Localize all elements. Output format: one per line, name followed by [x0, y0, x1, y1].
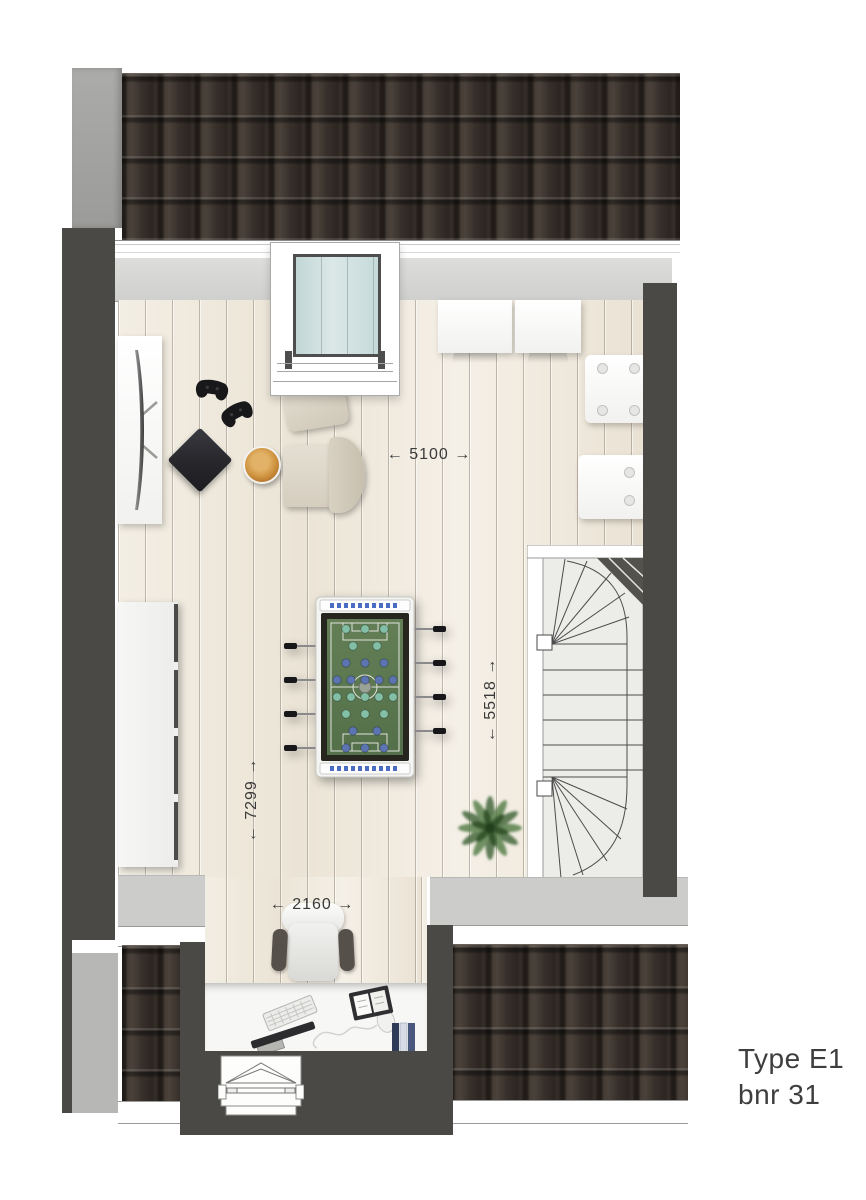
dimension-stair-zone-depth: ← 5518 → — [482, 645, 500, 755]
chair-armrest — [338, 929, 355, 972]
plant-icon — [450, 788, 530, 868]
office-chair-icon — [272, 903, 354, 985]
garden-wall-block — [72, 953, 118, 1113]
armchair — [283, 437, 369, 513]
tv-cabinet — [118, 336, 162, 524]
fascia-bottom-left — [118, 1101, 185, 1124]
dimension-desk-nook-width: ← 2160 → — [257, 896, 367, 914]
roof-tiles-bottom-right — [450, 944, 688, 1102]
plan-type-label: Type E1 bnr 31 — [738, 1041, 844, 1113]
dormer-sill-line — [273, 381, 397, 382]
chair-seat — [288, 923, 338, 981]
table-knob — [597, 363, 608, 374]
wardrobe-shadow — [451, 353, 498, 363]
roof-tiles-bottom-left — [122, 945, 180, 1103]
plan-type-line1: Type E1 — [738, 1041, 844, 1077]
staircase-icon — [527, 545, 645, 878]
gamepad-icon — [193, 376, 230, 404]
sideboard-edge — [174, 604, 178, 864]
right-wall — [643, 283, 677, 897]
roof-tiles-top — [122, 73, 680, 241]
dimension-living-width: ← 5100 → — [374, 446, 484, 464]
dormer-frame-post — [285, 351, 292, 369]
dormer-frame-post — [378, 351, 385, 369]
table-knob — [629, 405, 640, 416]
floor-plan: ← 5100 → ← 5518 → ← 7299 → ← 2160 → Type… — [0, 0, 866, 1200]
table-knob — [597, 405, 608, 416]
plan-type-line2: bnr 31 — [738, 1077, 844, 1113]
table-knob — [629, 363, 640, 374]
wardrobe-right — [515, 300, 581, 353]
table-knob — [624, 495, 635, 506]
dormer-sill-line — [277, 371, 393, 372]
dormer-window-top — [270, 242, 400, 396]
table-knob — [624, 467, 635, 478]
armchair-back — [329, 437, 365, 513]
dormer-glass — [293, 254, 381, 357]
chair-armrest — [271, 929, 288, 972]
tv-icon — [118, 336, 162, 524]
dormer-sill-line — [277, 363, 393, 364]
desk-surface — [205, 983, 427, 1053]
snack-bowl-icon — [243, 446, 281, 484]
fascia-bottom-right — [432, 1100, 688, 1124]
sideboard — [118, 602, 178, 867]
wardrobe-shadow — [527, 353, 569, 363]
dimension-room-length: ← 7299 → — [243, 745, 261, 855]
wardrobe-left — [438, 300, 512, 353]
left-wall — [62, 228, 115, 940]
dormer-window-bottom — [218, 1055, 304, 1117]
foosball-table-icon — [280, 593, 450, 783]
knee-wall-left — [118, 875, 205, 930]
chimney — [72, 68, 122, 228]
wall-sliver-bottom-left — [62, 935, 72, 1113]
